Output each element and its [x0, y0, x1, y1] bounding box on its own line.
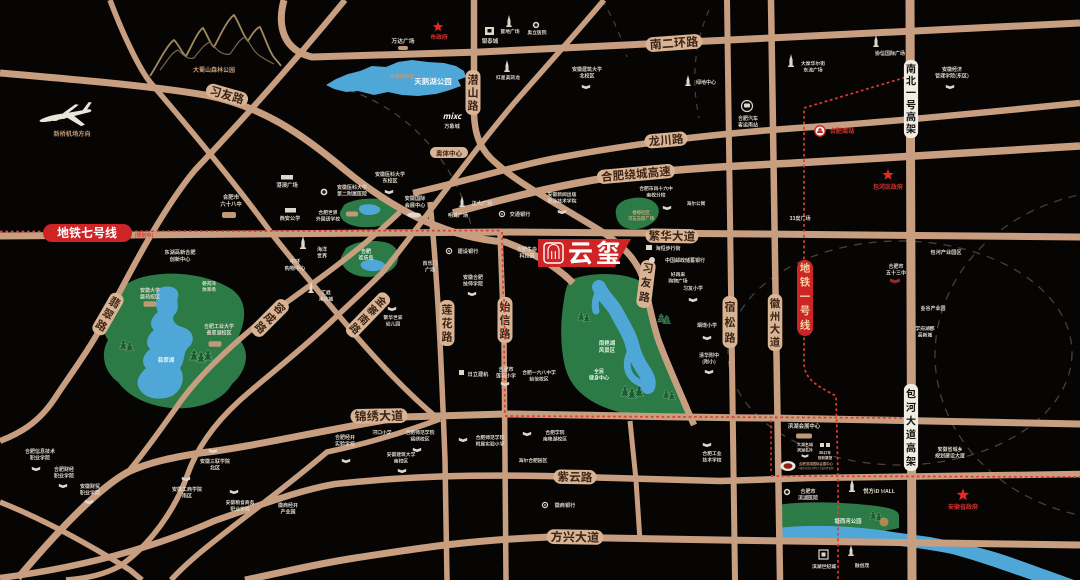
svg-text:购物中心: 购物中心 [285, 264, 307, 272]
svg-text:路: 路 [442, 328, 453, 344]
svg-text:东流广场: 东流广场 [803, 66, 822, 73]
svg-text:市政府: 市政府 [430, 32, 448, 41]
svg-text:世界: 世界 [317, 253, 327, 260]
svg-text:南二环路: 南二环路 [649, 33, 699, 53]
svg-text:金谷产业园: 金谷产业园 [920, 305, 945, 312]
svg-text:交通银行: 交通银行 [510, 210, 531, 218]
svg-text:磬苑校区: 磬苑校区 [140, 294, 160, 301]
svg-text:风景区: 风景区 [599, 346, 616, 354]
svg-text:路: 路 [725, 329, 736, 345]
svg-text:烟墩小学: 烟墩小学 [697, 322, 717, 329]
svg-text:合肥南站: 合肥南站 [830, 126, 855, 135]
svg-text:包河区政府: 包河区政府 [873, 182, 903, 191]
svg-text:中环: 中环 [290, 257, 300, 265]
svg-text:架: 架 [906, 121, 916, 136]
svg-text:购物广场: 购物广场 [668, 277, 687, 284]
svg-text:线: 线 [800, 317, 811, 332]
svg-text:职业学院: 职业学院 [230, 505, 249, 512]
svg-text:西安公学: 西安公学 [280, 214, 301, 222]
svg-text:大蜀山森林公园: 大蜀山森林公园 [193, 65, 235, 74]
svg-text:万象城: 万象城 [444, 122, 460, 130]
svg-text:天鹅湖公园: 天鹅湖公园 [414, 76, 452, 87]
svg-text:置地广场: 置地广场 [500, 28, 519, 35]
svg-text:翡翠湖: 翡翠湖 [158, 356, 175, 364]
svg-text:包河产业园区: 包河产业园区 [930, 248, 961, 256]
svg-text:六十八中: 六十八中 [220, 200, 242, 208]
svg-text:南区: 南区 [182, 493, 192, 500]
svg-text:创新中心: 创新中心 [170, 255, 192, 263]
svg-text:北区: 北区 [210, 465, 220, 472]
svg-text:香樟社区: 香樟社区 [632, 209, 650, 216]
svg-text:海尔公寓: 海尔公寓 [687, 200, 706, 207]
svg-text:33度广场: 33度广场 [790, 215, 811, 222]
svg-text:华地博物馆: 华地博物馆 [390, 73, 414, 80]
svg-text:广场: 广场 [425, 267, 435, 274]
svg-text:第二附属医院: 第二附属医院 [337, 191, 367, 198]
svg-text:滨湖世纪城: 滨湖世纪城 [812, 563, 836, 570]
svg-text:海尔合肥园区: 海尔合肥园区 [519, 457, 548, 464]
svg-text:协信国际广场: 协信国际广场 [875, 50, 905, 57]
svg-text:悦方iD MALL: 悦方iD MALL [863, 487, 895, 495]
svg-text:中国邮政储蓄银行: 中国邮政储蓄银行 [665, 257, 705, 264]
svg-text:奥立医院: 奥立医院 [527, 29, 546, 36]
svg-text:习友志愿广场: 习友志愿广场 [628, 215, 655, 222]
svg-text:始信校区: 始信校区 [529, 375, 548, 382]
svg-text:高新城: 高新城 [918, 331, 933, 338]
svg-text:银泰城: 银泰城 [482, 37, 499, 45]
svg-text:南艳湖校区: 南艳湖校区 [543, 435, 567, 442]
svg-text:附属实验小学: 附属实验小学 [476, 440, 505, 447]
svg-text:东校区: 东校区 [382, 178, 397, 185]
svg-text:铁: 铁 [800, 275, 811, 290]
svg-text:实验学校: 实验学校 [335, 441, 355, 448]
svg-text:道: 道 [770, 334, 781, 349]
svg-text:锦绣大道: 锦绣大道 [354, 407, 403, 425]
svg-text:外国语学校: 外国语学校 [316, 215, 340, 222]
svg-text:架: 架 [906, 453, 916, 468]
svg-text:技术学校: 技术学校 [702, 456, 721, 463]
svg-text:龙川路: 龙川路 [648, 131, 685, 150]
svg-text:地: 地 [800, 261, 811, 276]
svg-text:明珠广场: 明珠广场 [448, 212, 468, 219]
svg-text:滨湖会展中心: 滨湖会展中心 [788, 422, 821, 430]
svg-text:港达城: 港达城 [319, 295, 334, 302]
svg-text:健身中心: 健身中心 [589, 375, 609, 382]
svg-text:繁华大道: 繁华大道 [648, 228, 695, 245]
svg-text:幼儿园: 幼儿园 [386, 320, 401, 327]
svg-text:五十三中: 五十三中 [886, 270, 906, 277]
svg-text:万达广场: 万达广场 [391, 36, 414, 45]
svg-text:海恒步行街: 海恒步行街 [655, 245, 680, 252]
svg-text:(规划中): (规划中) [135, 232, 154, 239]
svg-text:规划建设大厦: 规划建设大厦 [935, 453, 965, 460]
svg-text:职业技术学院: 职业技术学院 [548, 197, 577, 204]
svg-text:红星美凯龙: 红星美凯龙 [496, 74, 520, 81]
svg-text:东湖高新合肥: 东湖高新合肥 [164, 248, 196, 256]
svg-text:日立建机: 日立建机 [468, 370, 490, 378]
svg-text:正大广场: 正大广场 [472, 199, 493, 207]
svg-text:2017年: 2017年 [819, 450, 831, 456]
svg-text:滨湖名片: 滨湖名片 [797, 447, 813, 454]
svg-text:技师学院: 技师学院 [463, 281, 483, 288]
svg-text:徽商银行: 徽商银行 [555, 501, 576, 509]
svg-text:会展中心: 会展中心 [405, 201, 427, 209]
svg-text:塘西河公园: 塘西河公园 [835, 517, 862, 525]
svg-text:(附小): (附小) [702, 359, 716, 366]
svg-text:产业园: 产业园 [280, 509, 295, 516]
svg-text:新桥机场方向: 新桥机场方向 [53, 129, 90, 138]
svg-text:宿: 宿 [725, 299, 736, 315]
svg-text:欢乐岛: 欢乐岛 [358, 255, 373, 262]
svg-text:磬苑湾: 磬苑湾 [202, 280, 216, 287]
svg-text:休育场: 休育场 [202, 286, 216, 293]
svg-text:一: 一 [800, 289, 811, 304]
svg-text:路: 路 [468, 98, 479, 114]
svg-text:锦绣校区: 锦绣校区 [410, 435, 429, 442]
svg-text:滨湖医院: 滨湖医院 [798, 495, 818, 502]
svg-text:港澳广场: 港澳广场 [276, 181, 298, 189]
svg-text:安徽国际: 安徽国际 [405, 194, 427, 202]
svg-text:安徽省政府: 安徽省政府 [948, 502, 978, 511]
svg-text:建设银行: 建设银行 [458, 247, 479, 255]
svg-text:mixc: mixc [443, 111, 462, 122]
svg-text:习友小学: 习友小学 [683, 285, 703, 292]
svg-text:翡翠湖校区: 翡翠湖校区 [206, 330, 231, 337]
svg-text:HEFEI EXPO CENTER: HEFEI EXPO CENTER [798, 466, 834, 471]
svg-text:河口小学: 河口小学 [372, 429, 391, 436]
svg-text:职业学院: 职业学院 [80, 490, 100, 497]
svg-text:松: 松 [725, 314, 736, 330]
svg-text:南校分校: 南校分校 [646, 191, 665, 198]
svg-text:路: 路 [638, 288, 651, 305]
svg-text:方兴大道: 方兴大道 [550, 528, 599, 546]
svg-text:职业学院: 职业学院 [30, 455, 50, 462]
svg-text:号: 号 [800, 303, 811, 318]
svg-text:客运南站: 客运南站 [738, 122, 758, 129]
svg-text:北校区: 北校区 [579, 73, 594, 80]
svg-text:南校区: 南校区 [394, 457, 409, 464]
svg-text:地铁七号线: 地铁七号线 [57, 224, 117, 241]
svg-text:融创茂: 融创茂 [855, 562, 870, 569]
svg-text:云玺: 云玺 [568, 234, 624, 270]
svg-text:科技园: 科技园 [519, 253, 534, 260]
svg-text:管理学院(东区): 管理学院(东区) [935, 73, 969, 80]
svg-text:莲花小学: 莲花小学 [496, 373, 516, 380]
svg-text:奥体中心: 奥体中心 [436, 148, 463, 158]
svg-text:绿地中心: 绿地中心 [696, 79, 716, 86]
svg-text:紫云路: 紫云路 [557, 469, 593, 486]
svg-text:职业学院: 职业学院 [54, 473, 74, 480]
